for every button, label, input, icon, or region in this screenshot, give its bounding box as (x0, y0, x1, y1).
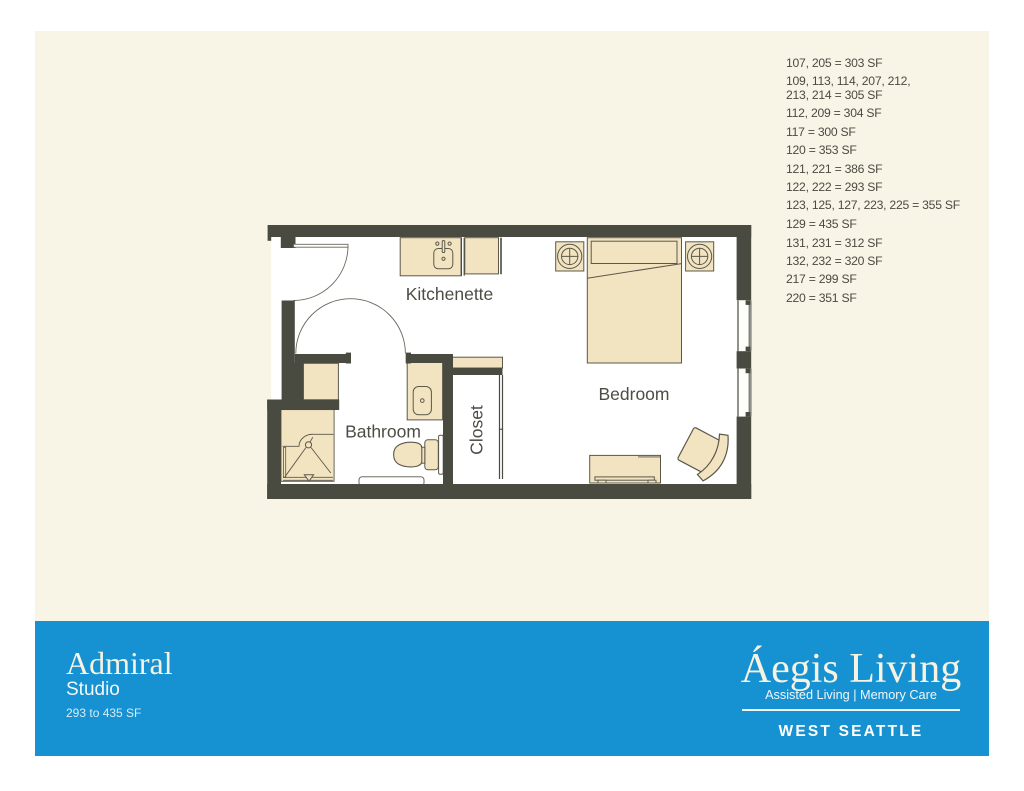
svg-text:Bathroom: Bathroom (345, 422, 421, 442)
svg-text:Bedroom: Bedroom (598, 384, 669, 404)
svg-text:Kitchenette: Kitchenette (406, 284, 494, 304)
svg-text:Closet: Closet (467, 405, 487, 455)
